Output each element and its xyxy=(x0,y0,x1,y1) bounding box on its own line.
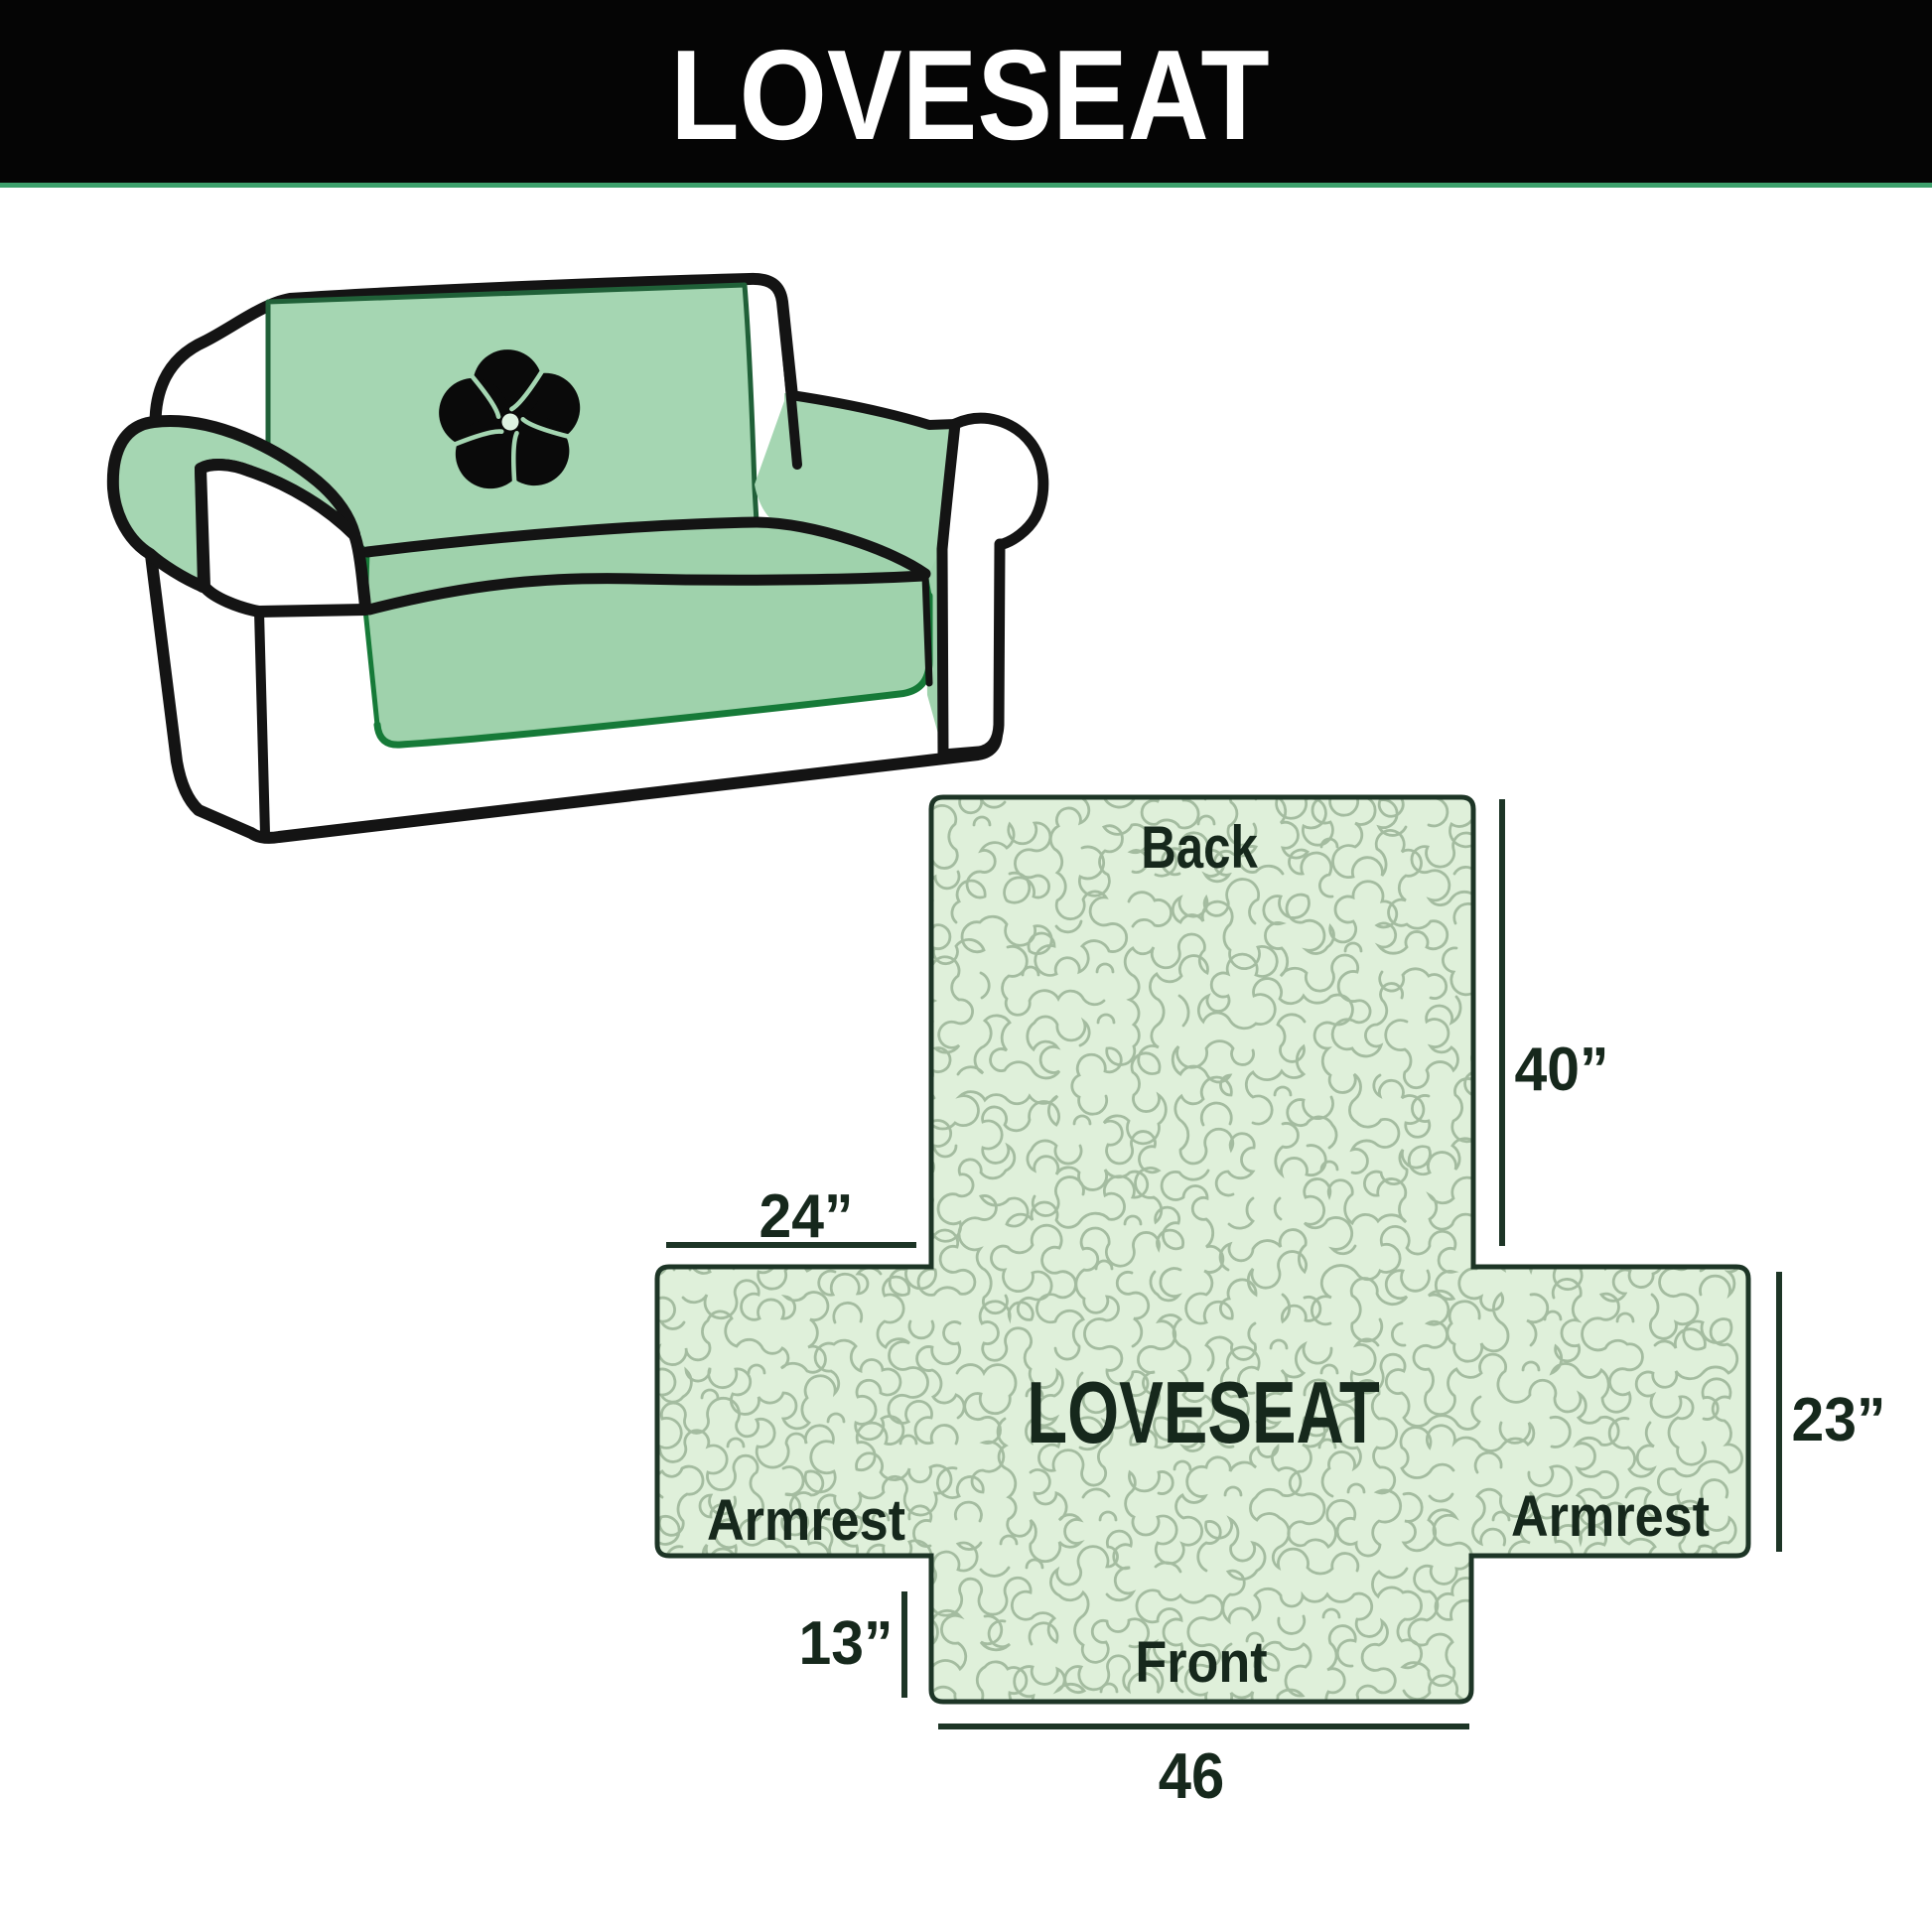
svg-text:46: 46 xyxy=(1159,1740,1225,1813)
svg-text:LOVESEAT: LOVESEAT xyxy=(670,23,1269,166)
svg-text:Front: Front xyxy=(1135,1629,1267,1694)
svg-text:Armrest: Armrest xyxy=(1511,1483,1710,1548)
svg-text:LOVESEAT: LOVESEAT xyxy=(1027,1363,1379,1461)
svg-text:40”: 40” xyxy=(1515,1035,1609,1104)
svg-text:13”: 13” xyxy=(799,1608,894,1678)
svg-text:23”: 23” xyxy=(1792,1385,1886,1454)
svg-text:Back: Back xyxy=(1141,813,1258,881)
svg-text:Armrest: Armrest xyxy=(707,1487,905,1552)
svg-text:24”: 24” xyxy=(759,1181,854,1251)
